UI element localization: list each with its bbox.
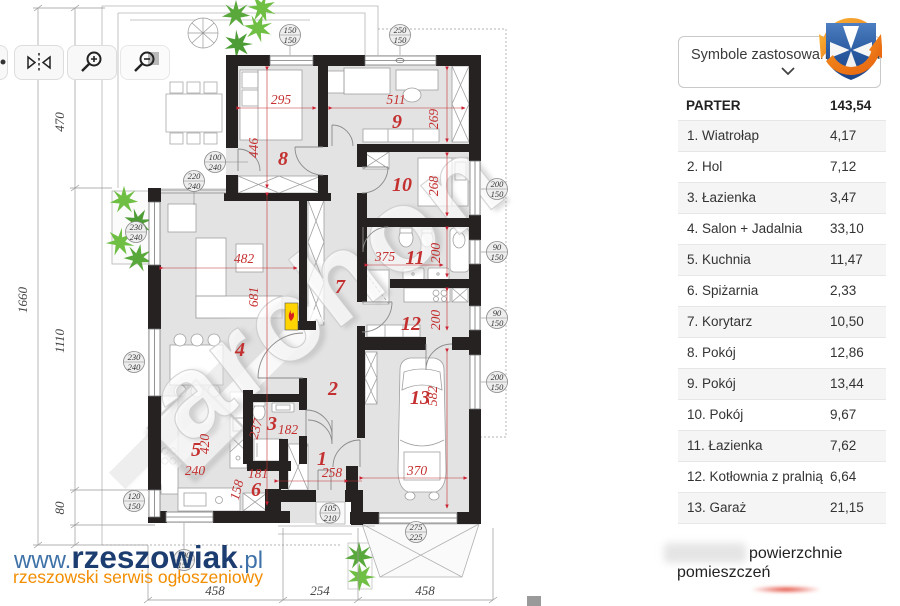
svg-text:150: 150	[491, 318, 505, 328]
svg-text:269: 269	[426, 109, 441, 130]
svg-text:200: 200	[491, 179, 505, 189]
svg-text:230: 230	[130, 222, 144, 232]
svg-text:100: 100	[209, 152, 223, 162]
svg-text:105: 105	[324, 503, 337, 513]
svg-text:181: 181	[248, 466, 268, 481]
svg-text:12: 12	[401, 313, 421, 335]
svg-text:200: 200	[428, 310, 443, 331]
svg-text:80: 80	[52, 501, 67, 515]
svg-text:90: 90	[493, 242, 502, 252]
svg-text:458: 458	[415, 583, 435, 598]
svg-text:275: 275	[410, 522, 423, 532]
svg-text:511: 511	[386, 92, 405, 107]
svg-text:150: 150	[128, 501, 142, 511]
svg-text:200: 200	[428, 243, 443, 264]
svg-text:220: 220	[188, 171, 202, 181]
svg-text:582: 582	[425, 386, 440, 407]
svg-text:258: 258	[322, 465, 343, 480]
svg-text:240: 240	[130, 232, 144, 242]
svg-text:150: 150	[284, 35, 298, 45]
svg-text:295: 295	[271, 92, 292, 107]
svg-text:254: 254	[310, 583, 330, 598]
svg-text:10: 10	[392, 174, 412, 196]
svg-text:200: 200	[491, 372, 505, 382]
svg-text:420: 420	[197, 434, 212, 455]
svg-text:250: 250	[394, 25, 408, 35]
svg-text:446: 446	[246, 138, 261, 159]
svg-text:150: 150	[491, 382, 505, 392]
svg-text:681: 681	[246, 287, 261, 307]
svg-text:6: 6	[251, 479, 261, 501]
svg-text:470: 470	[52, 112, 67, 132]
svg-text:9: 9	[392, 111, 402, 133]
svg-text:7: 7	[335, 276, 346, 298]
svg-text:1660: 1660	[15, 287, 30, 314]
svg-text:150: 150	[284, 25, 298, 35]
svg-text:120: 120	[128, 491, 142, 501]
svg-text:268: 268	[426, 176, 441, 197]
svg-text:150: 150	[491, 189, 505, 199]
svg-text:240: 240	[209, 162, 223, 172]
svg-text:230: 230	[128, 352, 142, 362]
svg-text:1110: 1110	[52, 328, 67, 353]
svg-text:210: 210	[324, 513, 338, 523]
svg-text:240: 240	[188, 181, 202, 191]
svg-text:2: 2	[327, 378, 338, 400]
svg-text:240: 240	[128, 362, 142, 372]
svg-text:482: 482	[234, 251, 255, 266]
svg-text:4: 4	[234, 339, 245, 361]
svg-text:3: 3	[266, 413, 277, 435]
svg-text:370: 370	[406, 463, 428, 478]
svg-text:182: 182	[278, 422, 299, 437]
svg-text:8: 8	[278, 148, 288, 170]
svg-text:150: 150	[394, 35, 408, 45]
svg-text:150: 150	[491, 252, 505, 262]
svg-text:375: 375	[374, 249, 396, 264]
svg-text:225: 225	[410, 532, 423, 542]
svg-text:240: 240	[185, 463, 206, 478]
svg-text:90: 90	[493, 308, 502, 318]
svg-text:11: 11	[406, 247, 425, 269]
